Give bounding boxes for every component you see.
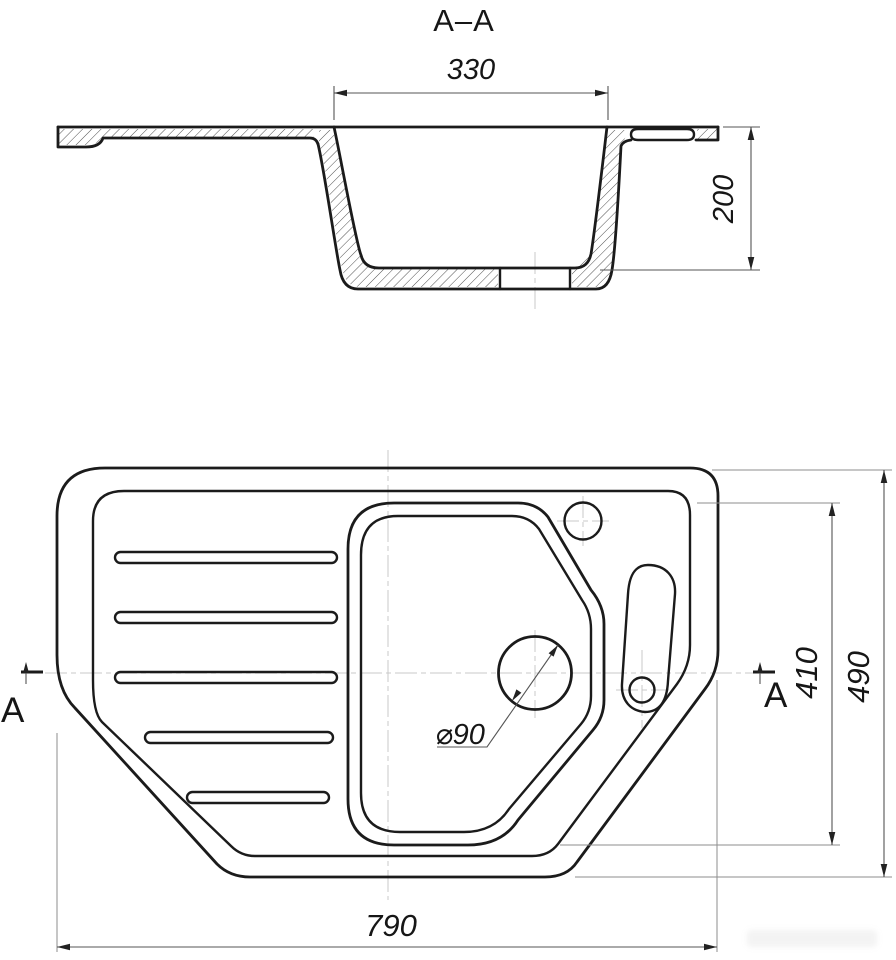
drain-leader: ⌀90 bbox=[435, 645, 558, 751]
dimension-200: 200 bbox=[600, 127, 760, 270]
section-view: 330 200 A–A bbox=[58, 3, 760, 289]
dimension-790: 790 bbox=[57, 680, 717, 952]
centerlines bbox=[45, 252, 753, 900]
dim-label-790: 790 bbox=[365, 908, 417, 943]
dim-label-490: 490 bbox=[841, 651, 876, 703]
drawing-canvas: 330 200 A–A bbox=[0, 0, 896, 960]
dimension-410: 410 bbox=[560, 503, 840, 845]
section-marker-right: A bbox=[764, 676, 788, 715]
section-title: A–A bbox=[433, 3, 495, 38]
bowl-inner-edge bbox=[361, 516, 591, 832]
plan-view: ⌀90 A A 790 490 bbox=[1, 468, 892, 952]
faded-watermark bbox=[747, 930, 877, 947]
dim-label-330: 330 bbox=[447, 54, 495, 86]
dim-label-200: 200 bbox=[708, 175, 740, 224]
dim-label-drain: ⌀90 bbox=[435, 719, 485, 751]
dim-label-410: 410 bbox=[789, 647, 824, 699]
section-marker-left: A bbox=[1, 691, 25, 730]
bowl-outer-edge bbox=[348, 503, 604, 845]
technical-drawing-sink: 330 200 A–A bbox=[0, 0, 896, 960]
dimension-330: 330 bbox=[334, 54, 608, 120]
